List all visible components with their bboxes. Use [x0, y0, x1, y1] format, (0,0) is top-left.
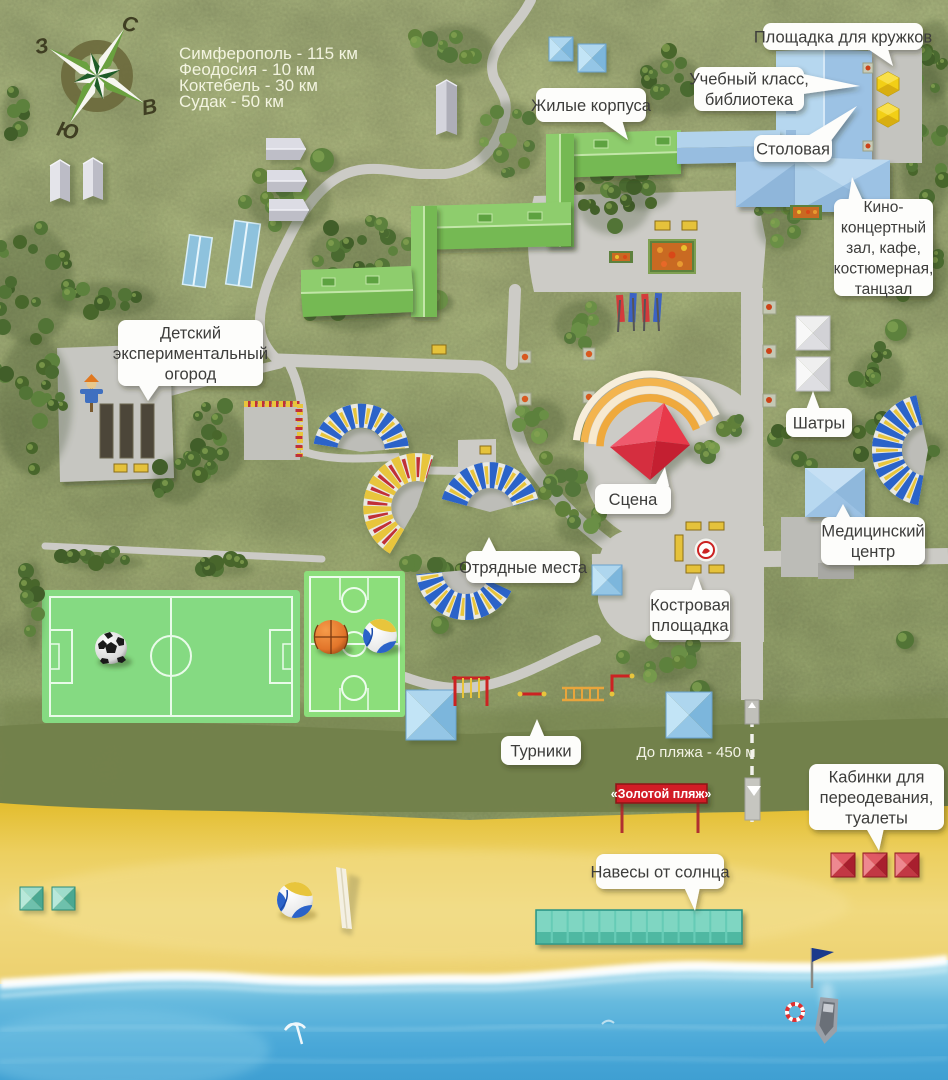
svg-text:Детский: Детский [160, 324, 221, 342]
svg-text:Шатры: Шатры [793, 414, 846, 432]
svg-text:центр: центр [851, 543, 895, 561]
svg-text:огород: огород [165, 365, 217, 383]
svg-text:туалеты: туалеты [845, 809, 908, 827]
svg-text:Кабинки для: Кабинки для [829, 768, 925, 786]
svg-text:Судак - 50 км: Судак - 50 км [179, 92, 284, 111]
svg-text:Сцена: Сцена [609, 491, 658, 509]
svg-text:Столовая: Столовая [756, 140, 830, 158]
svg-text:Отрядные места: Отрядные места [459, 559, 588, 577]
svg-text:Медицинский: Медицинский [821, 523, 924, 541]
svg-text:экспериментальный: экспериментальный [113, 345, 268, 363]
svg-text:костюмерная,: костюмерная, [834, 260, 934, 277]
svg-text:До пляжа - 450 м: До пляжа - 450 м [636, 744, 755, 761]
svg-text:концертный: концертный [841, 219, 926, 236]
svg-text:танцзал: танцзал [855, 281, 913, 298]
svg-text:Жилые корпуса: Жилые корпуса [531, 97, 652, 115]
svg-text:«Золотой пляж»: «Золотой пляж» [611, 787, 712, 801]
svg-text:Костровая: Костровая [650, 597, 730, 615]
svg-text:библиотека: библиотека [705, 91, 794, 109]
svg-text:площадка: площадка [651, 617, 729, 635]
svg-text:Кино-: Кино- [863, 199, 903, 216]
svg-text:переодевания,: переодевания, [820, 789, 934, 807]
svg-text:зал, кафе,: зал, кафе, [846, 240, 921, 257]
svg-text:Учебный класс,: Учебный класс, [689, 71, 809, 89]
svg-text:Площадка для кружков: Площадка для кружков [754, 28, 933, 46]
svg-text:Навесы от солнца: Навесы от солнца [590, 863, 730, 881]
svg-text:Турники: Турники [510, 742, 571, 760]
